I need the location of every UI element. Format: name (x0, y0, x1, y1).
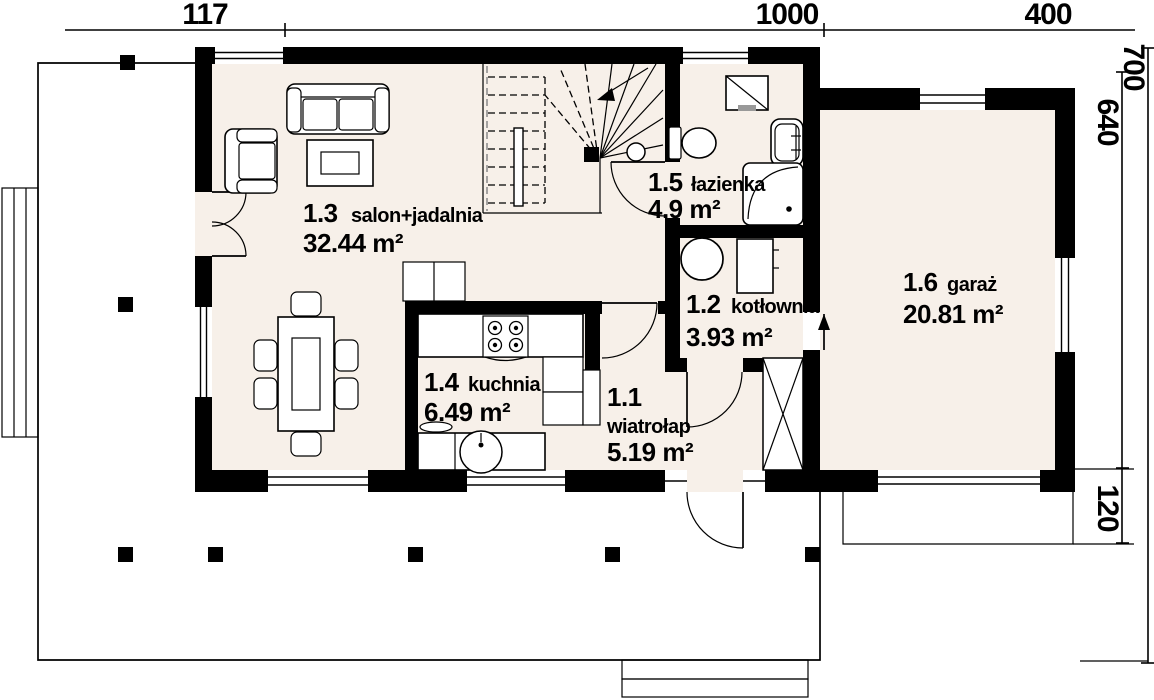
room-name: kotłownia (731, 296, 820, 318)
room-name: kuchnia (468, 374, 541, 396)
wall-left (195, 397, 212, 470)
porch-column (805, 547, 820, 562)
stair-newel-post (584, 147, 599, 162)
toilet (669, 127, 716, 159)
boiler (737, 239, 773, 293)
room-name: wiatrołap (606, 416, 691, 438)
wall-garage-right (1055, 88, 1075, 258)
entry-step (622, 679, 808, 697)
wall-left (195, 47, 212, 192)
kitchen-tall-cabinet (543, 357, 583, 392)
room-name: salon+jadalnia (351, 205, 484, 227)
room-area: 6.49 m² (424, 397, 511, 427)
room-number: 1.2 (686, 289, 721, 319)
room-number: 1.1 (607, 382, 642, 412)
room-number: 1.5 (648, 167, 683, 197)
dining-chair (254, 340, 277, 371)
wall-bottom (368, 470, 467, 492)
room-area: 32.44 m² (303, 228, 404, 258)
room-area: 5.19 m² (607, 437, 694, 467)
porch-column (605, 547, 620, 562)
room-area: 20.81 m² (903, 299, 1004, 329)
hall-wardrobe (403, 262, 465, 301)
shower-drain (786, 206, 792, 212)
window-garage-right (1055, 258, 1075, 352)
window-bathroom-top (683, 47, 748, 64)
room-area: 4.9 m² (648, 194, 721, 224)
opening-boiler-door (687, 358, 743, 372)
wall-garage-bottom (820, 470, 878, 492)
room-name: garaż (947, 274, 997, 296)
room-number: 1.6 (903, 267, 938, 297)
front-door (687, 492, 743, 548)
dining-chair (291, 292, 321, 316)
washer-front (738, 105, 756, 111)
wall-garage-bottom (1040, 470, 1075, 492)
room-number: 1.4 (424, 367, 460, 397)
wall-top (283, 47, 683, 64)
dimension-right: 700 640 120 (1073, 43, 1154, 663)
dimension-top: 117 1000 400 (65, 0, 1135, 37)
dining-chair (291, 432, 321, 456)
opening-front-door (687, 470, 743, 492)
washing-machine (726, 76, 768, 111)
dining-chair (335, 340, 358, 371)
floor-plan-canvas: 117 1000 400 700 640 120 1.3 salon+jadal… (0, 0, 1154, 700)
wall-kitchen-top (405, 301, 602, 314)
dining-chair (254, 378, 277, 409)
dim-right-700: 700 (1117, 43, 1150, 90)
coffee-table (307, 140, 373, 186)
wall-bath-boiler (665, 225, 803, 238)
kitchen-tall-cabinet (543, 392, 583, 425)
dim-right-120: 120 (1091, 484, 1124, 531)
wall-boiler-bottom (665, 358, 687, 372)
armchair (225, 129, 277, 193)
washbasin (771, 119, 803, 166)
dim-right-640: 640 (1091, 98, 1124, 145)
wall-bottom (765, 470, 820, 492)
wall-kitchen-left (405, 301, 418, 470)
wall-left (195, 256, 212, 307)
wall-house-garage (803, 47, 820, 312)
wall-hall-stub (658, 301, 665, 314)
porch-column (208, 547, 223, 562)
opening-french-door (195, 192, 212, 256)
garage-door-panel (878, 470, 1040, 492)
porch-column (118, 547, 133, 562)
room-area: 3.93 m² (686, 322, 773, 352)
duct-shaft (763, 358, 803, 470)
sink-tap (479, 443, 484, 448)
garage-apron (843, 492, 1073, 544)
wall-garage-top (803, 88, 920, 110)
stair-handrail (514, 128, 523, 206)
dining-chair (335, 378, 358, 409)
stair-pole (627, 143, 645, 161)
wall-kitchen-right (585, 301, 600, 370)
wall-boiler-bottom (743, 358, 763, 372)
side-steps (2, 188, 38, 437)
water-tank (681, 238, 723, 280)
dining-table (278, 317, 334, 431)
entry-step (622, 660, 808, 679)
window-salon-bottom (268, 470, 368, 492)
dim-top-400: 400 (1024, 0, 1071, 31)
room-number: 1.3 (303, 198, 338, 228)
room-name: łazienka (691, 174, 766, 196)
porch-column (118, 297, 133, 312)
window-salon-left (195, 307, 212, 397)
wall-bottom (565, 470, 665, 492)
floor-plan-page: 117 1000 400 700 640 120 1.3 salon+jadal… (0, 0, 1154, 700)
dim-top-1000: 1000 (756, 0, 819, 31)
wall-boiler-left (665, 238, 680, 372)
porch-column (120, 55, 135, 70)
wall-bottom (195, 470, 268, 492)
sofa (287, 84, 389, 134)
stove (483, 316, 528, 357)
kitchen-tall-cabinet (583, 370, 600, 425)
window-garage-top (920, 88, 985, 110)
window-salon-top (215, 47, 283, 64)
dim-top-117: 117 (182, 0, 228, 31)
porch-column (408, 547, 423, 562)
wall-house-garage (803, 350, 820, 470)
